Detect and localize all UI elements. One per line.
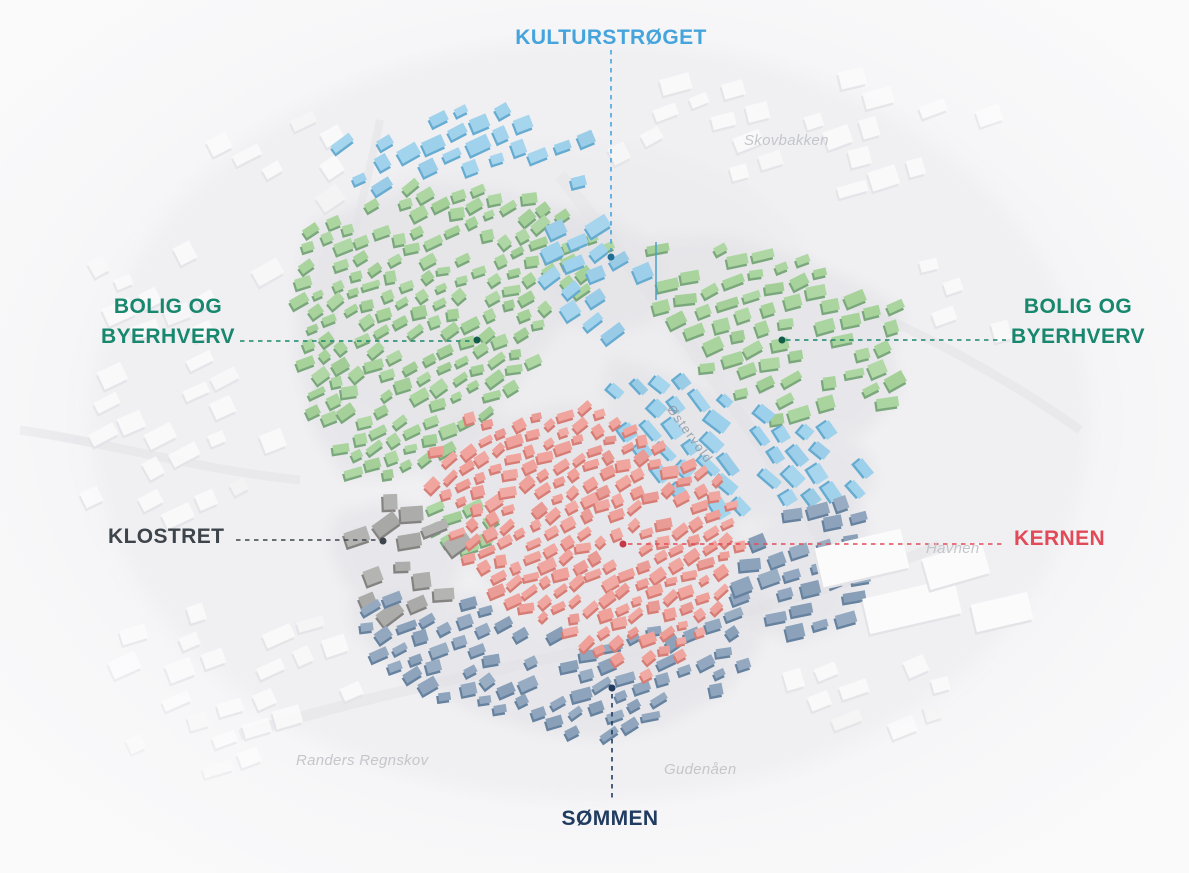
district-map: KULTURSTRØGET BOLIG OG BYERHVERV BOLIG O… [0,0,1189,873]
district-label-kernen: KERNEN [1014,524,1105,554]
district-label-line: BYERHVERV [101,325,235,348]
city-3d-map [0,0,1189,873]
district-label-sommen: SØMMEN [562,804,659,834]
district-dot-kulturstroget [608,254,615,261]
place-label-randers-regnskov: Randers Regnskov [296,752,428,769]
place-label-skovbakken: Skovbakken [744,132,829,149]
district-dot-bolig-byerhverv-ost [779,337,786,344]
district-dot-sommen [609,685,616,692]
district-label-bolig-byerhverv-vest: BOLIG OG BYERHVERV [101,292,235,352]
edge-fade [0,0,1189,873]
district-label-bolig-byerhverv-ost: BOLIG OG BYERHVERV [1011,292,1145,352]
district-label-kulturstroget: KULTURSTRØGET [515,23,706,53]
place-label-gudenaen: Gudenåen [664,761,736,778]
district-label-line: BOLIG OG [1024,295,1132,318]
district-dot-bolig-byerhverv-vest [474,337,481,344]
district-label-line: BYERHVERV [1011,325,1145,348]
district-dot-kernen [620,541,627,548]
district-label-klostret: KLOSTRET [108,522,224,552]
district-label-line: BOLIG OG [114,295,222,318]
district-dot-klostret [380,538,387,545]
place-label-havnen: Havnen [926,540,980,557]
